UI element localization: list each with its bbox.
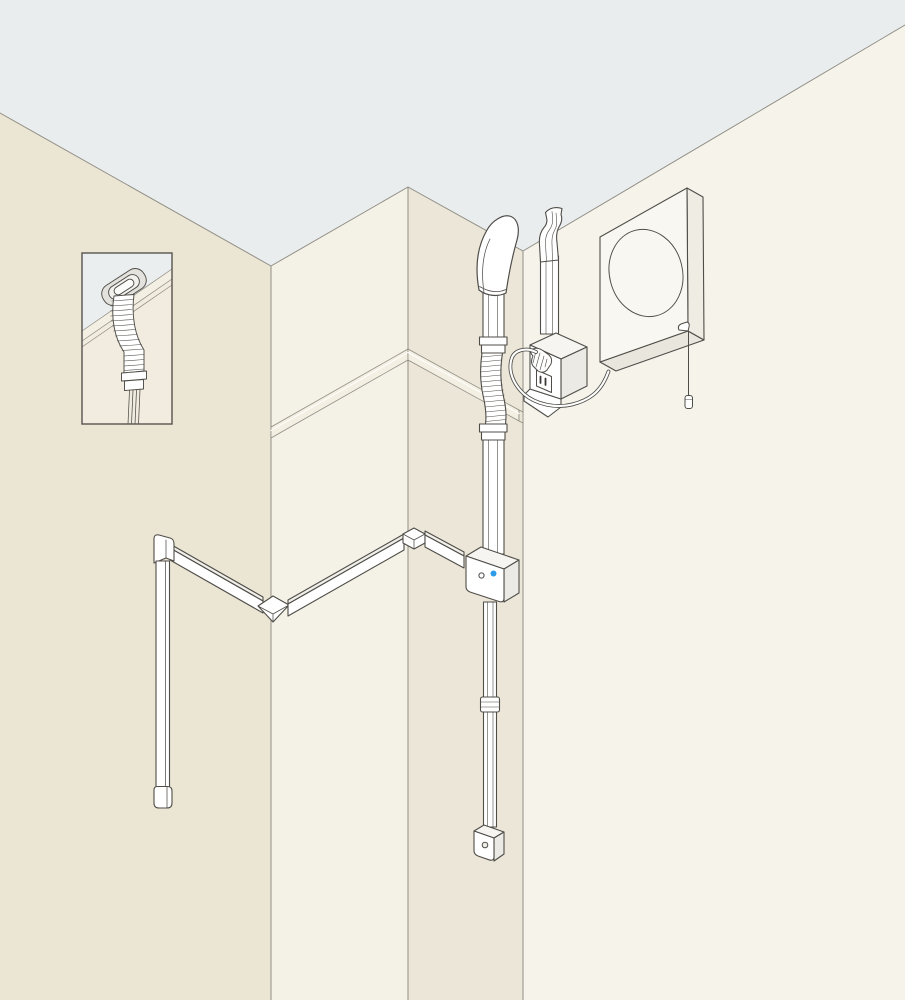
duct-coupler-lower xyxy=(480,424,508,440)
drop-coupler xyxy=(481,697,500,712)
pull-cord-handle xyxy=(685,396,693,409)
hose-coupler xyxy=(122,371,147,391)
trunking-top-elbow xyxy=(154,535,174,563)
fan-side-face xyxy=(687,188,704,340)
drop-conduit xyxy=(484,602,497,827)
column-face-left xyxy=(271,187,408,1000)
left-wall xyxy=(0,113,271,1000)
junction-button xyxy=(479,573,484,578)
inset-detail-box xyxy=(82,253,172,424)
sensor-hole xyxy=(482,842,488,848)
duct-to-junction xyxy=(483,440,504,554)
room-surfaces xyxy=(0,0,905,1000)
duct-coupler-upper xyxy=(480,337,508,353)
room-corner-diagram: Isometric room-corner installation diagr… xyxy=(0,0,905,1000)
trunking-end-cap xyxy=(154,787,172,809)
outlet-trunking xyxy=(541,256,559,334)
illustration-canvas: Isometric room-corner installation diagr… xyxy=(0,0,905,1000)
junction-led xyxy=(491,571,497,577)
trunking-vertical-run xyxy=(156,561,170,789)
trim-end-cap xyxy=(519,410,523,423)
